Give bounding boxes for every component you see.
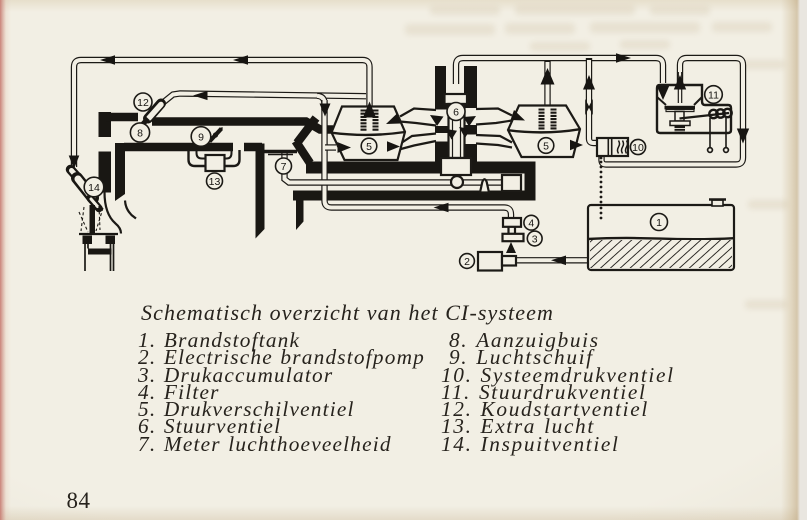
- svg-text:6: 6: [453, 107, 459, 119]
- svg-text:3: 3: [532, 234, 538, 246]
- svg-text:14: 14: [88, 182, 100, 194]
- svg-text:8: 8: [137, 128, 143, 140]
- svg-text:4: 4: [528, 218, 534, 230]
- svg-text:13: 13: [209, 176, 221, 188]
- svg-text:2: 2: [464, 256, 470, 268]
- svg-text:10: 10: [632, 142, 644, 154]
- svg-text:5: 5: [366, 141, 372, 153]
- svg-text:9: 9: [198, 132, 204, 144]
- svg-text:7: 7: [281, 161, 287, 173]
- svg-text:11: 11: [708, 90, 719, 102]
- svg-text:5: 5: [543, 141, 549, 153]
- svg-text:1: 1: [656, 217, 662, 229]
- svg-text:12: 12: [137, 97, 149, 109]
